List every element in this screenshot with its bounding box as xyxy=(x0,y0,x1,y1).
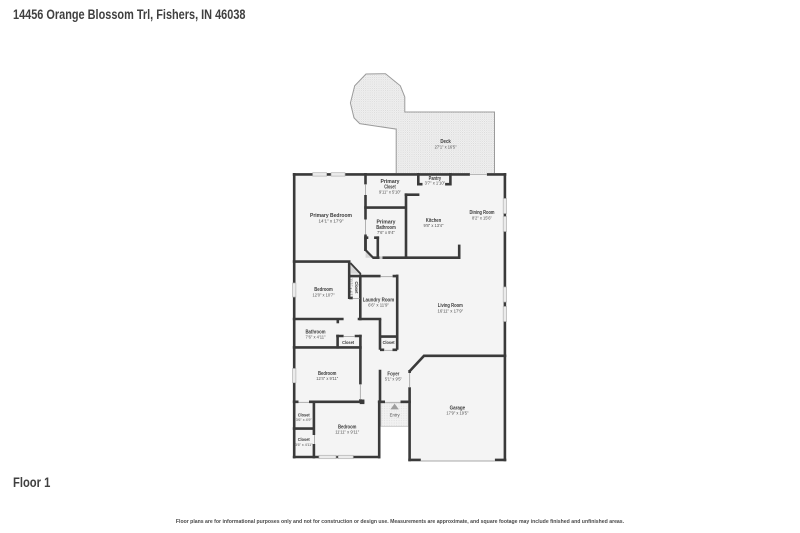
svg-text:27'1" x 16'5": 27'1" x 16'5" xyxy=(435,145,457,150)
svg-text:Entry: Entry xyxy=(390,412,401,417)
svg-text:12'0" x 10'7": 12'0" x 10'7" xyxy=(313,292,335,297)
svg-text:3'6" x 4'9": 3'6" x 4'9" xyxy=(296,417,313,422)
svg-text:11'1" x 4'1": 11'1" x 4'1" xyxy=(349,278,354,298)
svg-text:8'2" x 15'6": 8'2" x 15'6" xyxy=(472,215,492,220)
svg-text:14'1" x 17'9": 14'1" x 17'9" xyxy=(319,219,344,224)
svg-text:9'11" x 5'10": 9'11" x 5'10" xyxy=(379,189,401,194)
svg-text:16'11" x 17'9": 16'11" x 17'9" xyxy=(437,308,463,313)
svg-text:5'1" x 9'5": 5'1" x 9'5" xyxy=(385,376,402,381)
svg-text:7'6" x 4'11": 7'6" x 4'11" xyxy=(306,335,326,340)
svg-text:Closet: Closet xyxy=(383,340,395,346)
svg-text:Closet: Closet xyxy=(342,340,354,346)
svg-text:3'6" x 4'11": 3'6" x 4'11" xyxy=(295,442,313,447)
svg-text:6'6" x 11'9": 6'6" x 11'9" xyxy=(368,303,389,308)
svg-text:11'11" x 9'11": 11'11" x 9'11" xyxy=(335,430,359,435)
svg-text:3'7" x 1'10": 3'7" x 1'10" xyxy=(425,181,446,186)
svg-text:9'8" x 13'4": 9'8" x 13'4" xyxy=(424,223,444,228)
svg-text:17'9" x 19'5": 17'9" x 19'5" xyxy=(446,411,468,416)
svg-text:7'6" x 9'4": 7'6" x 9'4" xyxy=(377,230,395,235)
svg-text:12'4" x 9'11": 12'4" x 9'11" xyxy=(316,376,338,381)
